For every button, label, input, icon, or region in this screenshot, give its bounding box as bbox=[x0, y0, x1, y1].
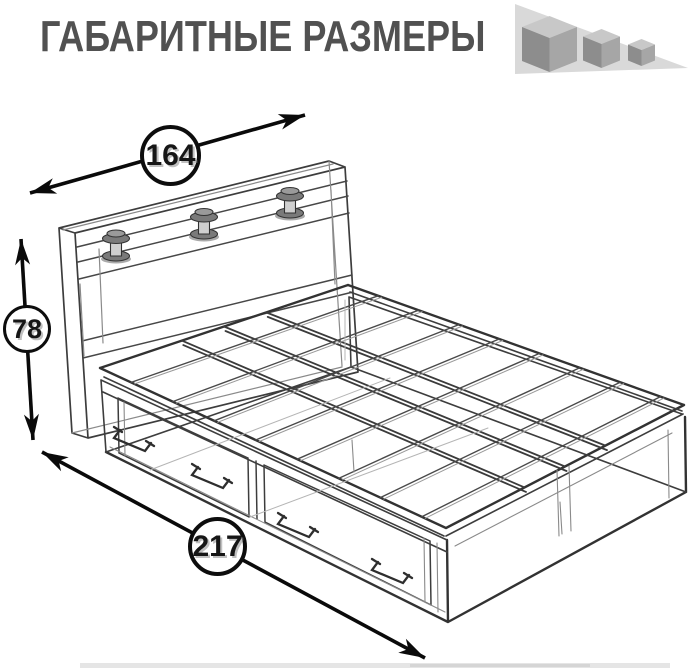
dimension-length-value: 217 bbox=[192, 530, 242, 564]
slat-deck-long-rails bbox=[182, 312, 607, 492]
headboard-shelf-lines bbox=[77, 181, 353, 358]
dimension-width-label: 164 bbox=[140, 125, 201, 186]
dimension-height-value: 78 bbox=[12, 314, 42, 345]
bed-frame-medium-lines bbox=[101, 292, 686, 552]
dimension-width-value: 164 bbox=[145, 139, 195, 173]
scan-artifact-band bbox=[80, 663, 670, 668]
page-title: ГАБАРИТНЫЕ РАЗМЕРЫ bbox=[40, 12, 485, 60]
dimension-height-label: 78 bbox=[3, 305, 51, 353]
bed-technical-drawing bbox=[0, 0, 700, 669]
dimension-length-label: 217 bbox=[188, 517, 247, 576]
dimensions-diagram-page: ГАБАРИТНЫЕ РАЗМЕРЫ 164 78 217 bbox=[0, 0, 700, 669]
drawer-handles bbox=[114, 427, 412, 583]
size-cubes-icon bbox=[515, 4, 688, 74]
